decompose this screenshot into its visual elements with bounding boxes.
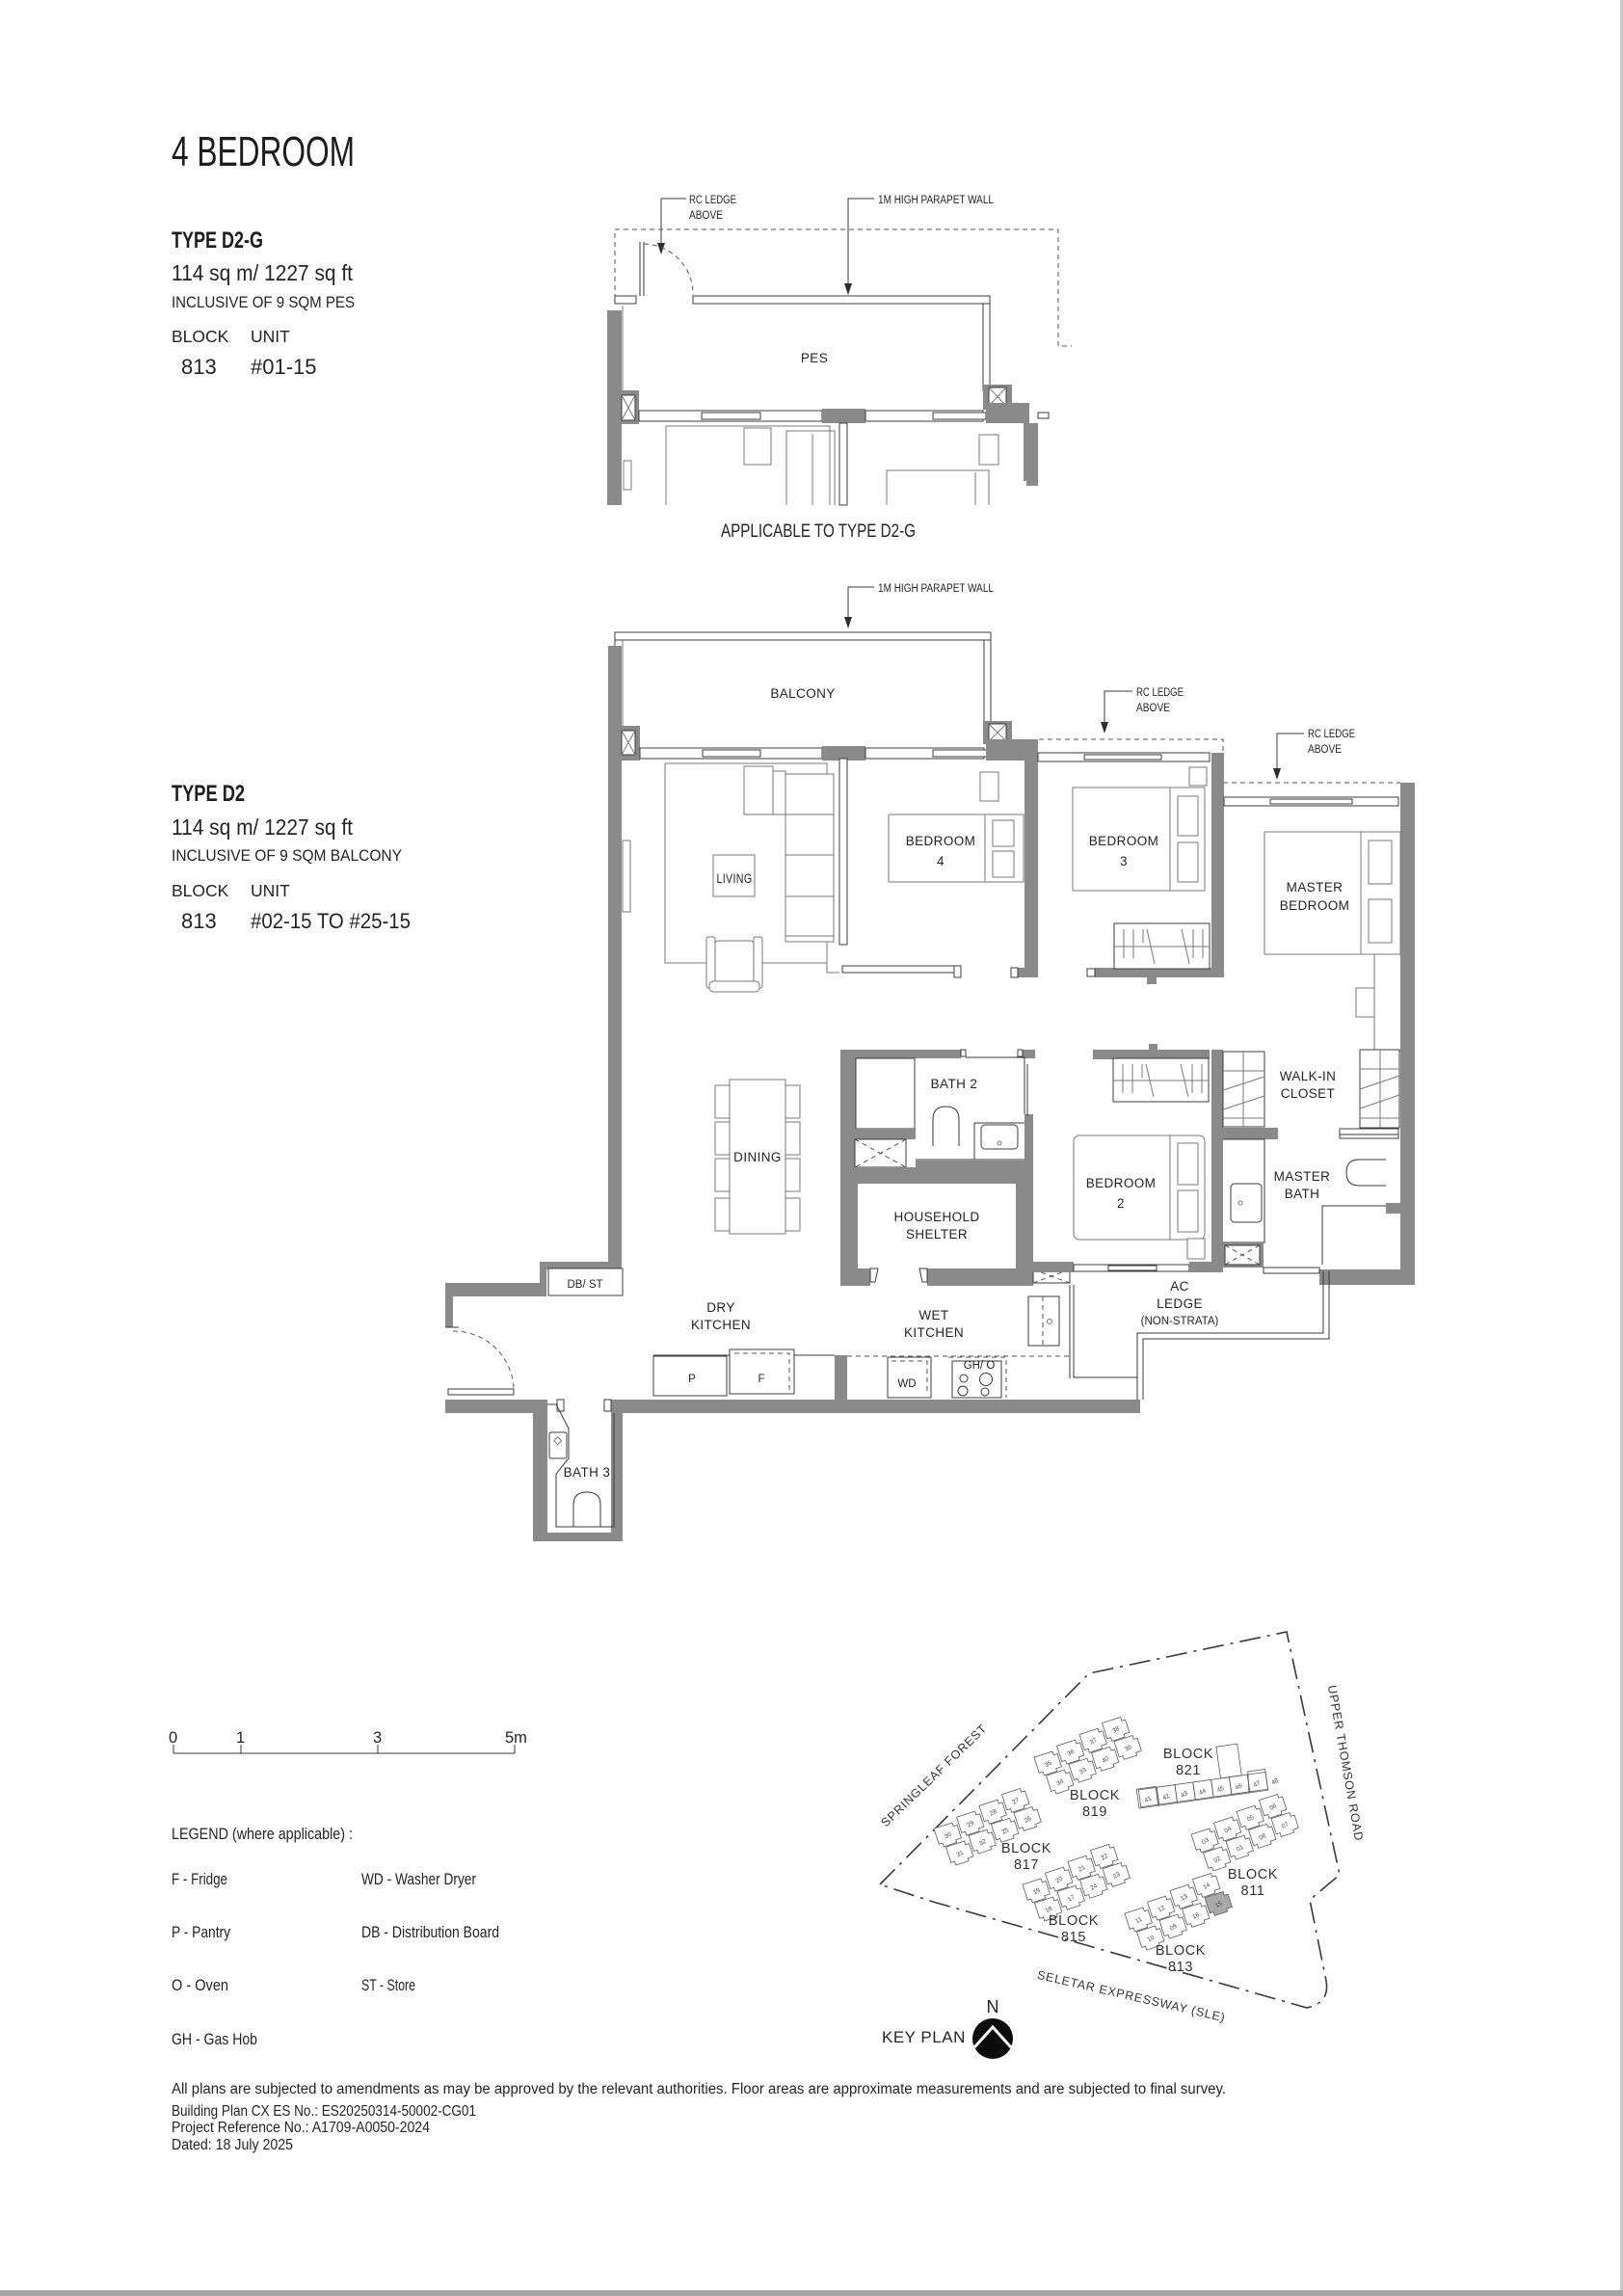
svg-text:WET: WET [918,1308,948,1322]
svg-text:N: N [987,1997,999,2016]
svg-text:RC LEDGE: RC LEDGE [1136,687,1184,699]
svg-text:3: 3 [1120,854,1128,868]
svg-text:O - Oven: O - Oven [172,1977,228,1994]
svg-text:4: 4 [937,854,945,868]
svg-text:MASTER: MASTER [1274,1169,1331,1184]
svg-text:ST - Store: ST - Store [361,1977,415,1994]
svg-text:All plans are subjected to ame: All plans are subjected to amendments as… [172,2081,1226,2097]
svg-text:LEGEND (where applicable) :: LEGEND (where applicable) : [172,1826,353,1843]
svg-text:BLOCK: BLOCK [1049,1913,1099,1929]
svg-text:815: 815 [1061,1930,1086,1945]
svg-text:2: 2 [1117,1196,1125,1211]
svg-text:APPLICABLE TO TYPE D2-G: APPLICABLE TO TYPE D2-G [721,521,916,542]
svg-text:821: 821 [1176,1763,1201,1778]
svg-text:1: 1 [236,1729,245,1747]
svg-text:ABOVE: ABOVE [1136,703,1170,714]
svg-text:BALCONY: BALCONY [770,686,835,701]
svg-text:BLOCK: BLOCK [1070,1788,1120,1803]
svg-text:3: 3 [373,1729,382,1747]
svg-text:AC: AC [1170,1279,1189,1294]
svg-text:ABOVE: ABOVE [689,210,723,222]
svg-text:GH - Gas Hob: GH - Gas Hob [172,2031,257,2048]
svg-text:LIVING: LIVING [717,871,753,886]
svg-text:Dated: 18 July 2025: Dated: 18 July 2025 [172,2137,293,2153]
svg-text:114 sq m/ 1227 sq ft: 114 sq m/ 1227 sq ft [172,814,354,840]
svg-text:PES: PES [801,351,828,365]
svg-text:KITCHEN: KITCHEN [691,1318,751,1332]
svg-text:CLOSET: CLOSET [1281,1086,1335,1101]
svg-text:SHELTER: SHELTER [906,1227,968,1241]
svg-text:Project Reference No.: A1709-A: Project Reference No.: A1709-A0050-2024 [172,2120,430,2136]
svg-text:(NON-STRATA): (NON-STRATA) [1141,1316,1219,1327]
svg-text:TYPE D2-G: TYPE D2-G [172,227,263,254]
svg-text:ABOVE: ABOVE [1308,744,1342,756]
svg-text:0: 0 [169,1729,177,1747]
svg-text:#01-15: #01-15 [251,355,317,379]
svg-text:BEDROOM: BEDROOM [906,834,976,848]
svg-text:BATH 3: BATH 3 [564,1465,611,1480]
svg-text:F: F [758,1374,764,1385]
svg-text:WALK-IN: WALK-IN [1280,1069,1337,1083]
svg-text:KEY PLAN: KEY PLAN [882,2028,966,2046]
svg-text:819: 819 [1082,1804,1107,1820]
svg-text:WD: WD [897,1378,916,1390]
svg-text:GH/ O: GH/ O [964,1360,996,1372]
svg-text:#02-15 TO #25-15: #02-15 TO #25-15 [251,909,411,933]
svg-text:INCLUSIVE OF 9 SQM PES: INCLUSIVE OF 9 SQM PES [172,293,355,311]
svg-text:P - Pantry: P - Pantry [172,1924,231,1941]
svg-text:LEDGE: LEDGE [1157,1296,1203,1311]
svg-text:P: P [688,1374,696,1385]
svg-text:811: 811 [1241,1883,1265,1899]
svg-text:BEDROOM: BEDROOM [1086,1176,1157,1190]
svg-text:DINING: DINING [733,1150,782,1164]
svg-text:1M HIGH PARAPET WALL: 1M HIGH PARAPET WALL [878,583,995,595]
svg-text:BLOCK: BLOCK [1156,1943,1206,1959]
svg-text:813: 813 [181,909,217,933]
svg-text:4 BEDROOM: 4 BEDROOM [172,128,355,175]
svg-text:DB/ ST: DB/ ST [567,1279,602,1291]
svg-text:813: 813 [1168,1960,1193,1975]
svg-text:BEDROOM: BEDROOM [1089,834,1159,848]
svg-text:BLOCK: BLOCK [172,327,229,346]
svg-text:KITCHEN: KITCHEN [904,1325,964,1340]
svg-text:UNIT: UNIT [251,327,290,346]
svg-text:BLOCK: BLOCK [172,881,229,900]
svg-text:HOUSEHOLD: HOUSEHOLD [893,1210,979,1224]
svg-text:WD - Washer Dryer: WD - Washer Dryer [361,1871,476,1888]
svg-text:TYPE D2: TYPE D2 [172,781,245,807]
svg-text:INCLUSIVE OF 9 SQM BALCONY: INCLUSIVE OF 9 SQM BALCONY [172,846,402,865]
svg-text:1M HIGH PARAPET WALL: 1M HIGH PARAPET WALL [878,195,995,206]
svg-text:813: 813 [181,355,217,379]
svg-text:MASTER: MASTER [1287,880,1344,894]
svg-text:BEDROOM: BEDROOM [1280,898,1350,913]
svg-text:BATH 2: BATH 2 [931,1077,978,1091]
svg-text:5m: 5m [505,1729,527,1747]
svg-text:RC LEDGE: RC LEDGE [689,195,736,206]
svg-text:UNIT: UNIT [251,881,290,900]
svg-text:BLOCK: BLOCK [1001,1841,1051,1856]
svg-text:BLOCK: BLOCK [1228,1867,1278,1882]
svg-text:114 sq m/ 1227 sq ft: 114 sq m/ 1227 sq ft [172,260,354,285]
svg-text:RC LEDGE: RC LEDGE [1308,729,1355,740]
svg-text:DRY: DRY [706,1300,734,1315]
svg-text:BATH: BATH [1285,1187,1320,1201]
svg-text:BLOCK: BLOCK [1163,1747,1213,1762]
svg-text:F - Fridge: F - Fridge [172,1871,227,1888]
svg-text:DB - Distribution Board: DB - Distribution Board [361,1924,499,1941]
svg-text:Building Plan CX ES No.: ES202: Building Plan CX ES No.: ES20250314-5000… [172,2103,476,2120]
svg-text:817: 817 [1014,1857,1039,1873]
